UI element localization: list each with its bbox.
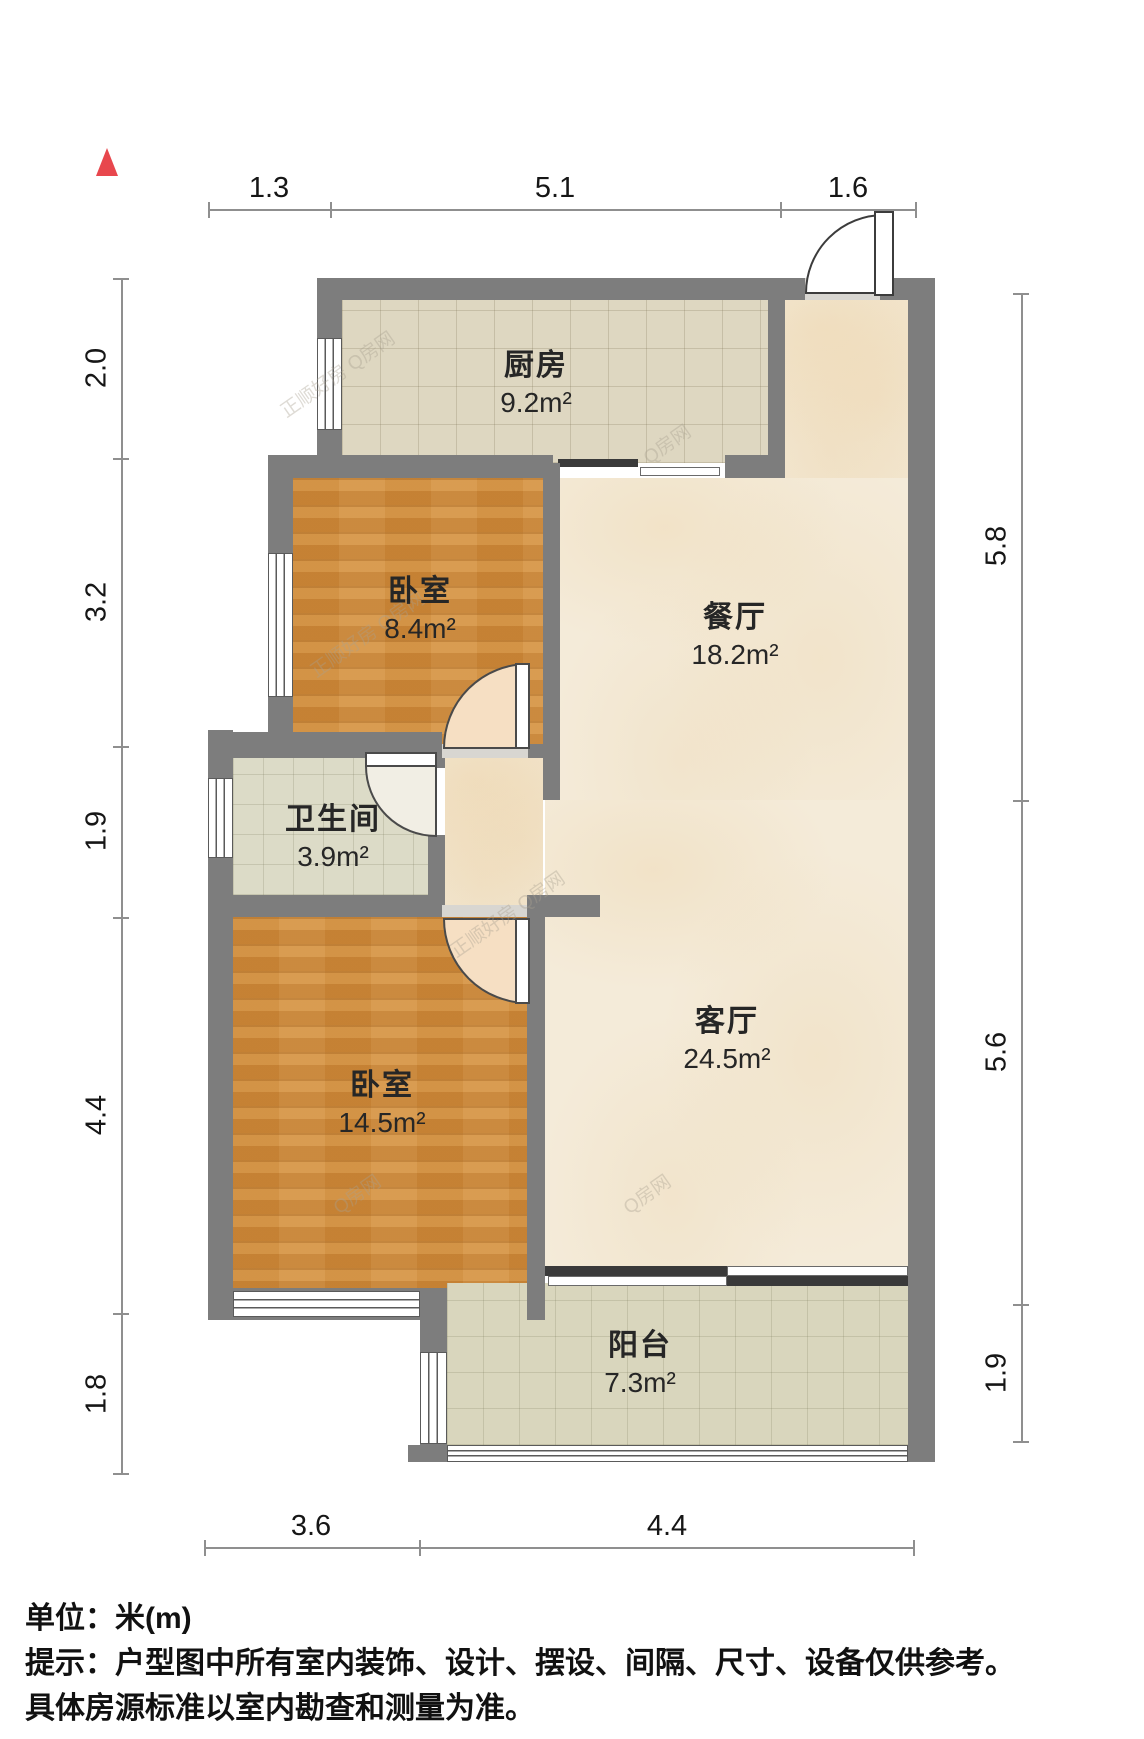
dining-label: 餐厅 18.2m² — [691, 592, 778, 671]
bedroom2-area: 14.5m² — [338, 1107, 425, 1139]
dim-tick — [113, 746, 129, 748]
dim-tick — [913, 1540, 915, 1556]
kitchen-label: 厨房 9.2m² — [500, 340, 572, 419]
dim-tick — [780, 202, 782, 218]
door-symbols — [0, 0, 1144, 1739]
bedroom2-name: 卧室 — [338, 1060, 425, 1104]
dining-area: 18.2m² — [691, 639, 778, 671]
dim-tick — [1013, 800, 1029, 802]
bathroom-name: 卫生间 — [285, 794, 381, 838]
bathroom-label: 卫生间 3.9m² — [285, 794, 381, 873]
kitchen-area: 9.2m² — [500, 387, 572, 419]
balcony-label: 阳台 7.3m² — [604, 1320, 676, 1399]
dim-left-2: 3.2 — [81, 572, 114, 632]
living-label: 客厅 24.5m² — [683, 996, 770, 1075]
dim-tick — [330, 202, 332, 218]
dim-tick — [1013, 1304, 1029, 1306]
dim-tick — [113, 1473, 129, 1475]
dim-tick — [204, 1540, 206, 1556]
dim-top-2: 5.1 — [535, 172, 575, 205]
dim-tick — [113, 1313, 129, 1315]
footer-unit: 单位：米(m) — [25, 1593, 192, 1637]
dim-tick — [113, 278, 129, 280]
kitchen-name: 厨房 — [500, 340, 572, 384]
dim-line-right — [1021, 293, 1023, 1443]
dim-right-2: 5.6 — [981, 1022, 1014, 1082]
floorplan-page: { "rooms": { "kitchen": {"name": "厨房", "… — [0, 0, 1144, 1739]
balcony-name: 阳台 — [604, 1320, 676, 1364]
dim-bottom-1: 3.6 — [291, 1510, 331, 1543]
dim-line-bottom — [204, 1547, 915, 1549]
bedroom1-label: 卧室 8.4m² — [384, 566, 456, 645]
dim-top-1: 1.3 — [249, 172, 289, 205]
bathroom-area: 3.9m² — [285, 841, 381, 873]
dim-left-3: 1.9 — [81, 801, 114, 861]
living-area: 24.5m² — [683, 1043, 770, 1075]
dim-right-1: 5.8 — [981, 516, 1014, 576]
dim-tick — [208, 202, 210, 218]
dim-line-top — [208, 209, 917, 211]
balcony-area: 7.3m² — [604, 1367, 676, 1399]
bedroom1-name: 卧室 — [384, 566, 456, 610]
dim-left-4: 4.4 — [81, 1085, 114, 1145]
dim-tick — [419, 1540, 421, 1556]
dim-left-1: 2.0 — [81, 338, 114, 398]
dim-left-5: 1.8 — [81, 1364, 114, 1424]
dim-tick — [1013, 1441, 1029, 1443]
living-name: 客厅 — [683, 996, 770, 1040]
dim-tick — [1013, 293, 1029, 295]
dim-top-3: 1.6 — [828, 172, 868, 205]
dining-name: 餐厅 — [691, 592, 778, 636]
footer-note-1: 提示：户型图中所有室内装饰、设计、摆设、间隔、尺寸、设备仅供参考。 — [25, 1638, 1015, 1682]
dim-right-3: 1.9 — [981, 1343, 1014, 1403]
entry-door — [806, 212, 893, 295]
footer-note-2: 具体房源标准以室内勘查和测量为准。 — [25, 1683, 535, 1727]
bedroom2-label: 卧室 14.5m² — [338, 1060, 425, 1139]
bedroom1-door — [444, 664, 529, 748]
dim-tick — [915, 202, 917, 218]
dim-bottom-2: 4.4 — [647, 1510, 687, 1543]
bedroom1-area: 8.4m² — [384, 613, 456, 645]
dim-tick — [113, 917, 129, 919]
dim-tick — [113, 458, 129, 460]
